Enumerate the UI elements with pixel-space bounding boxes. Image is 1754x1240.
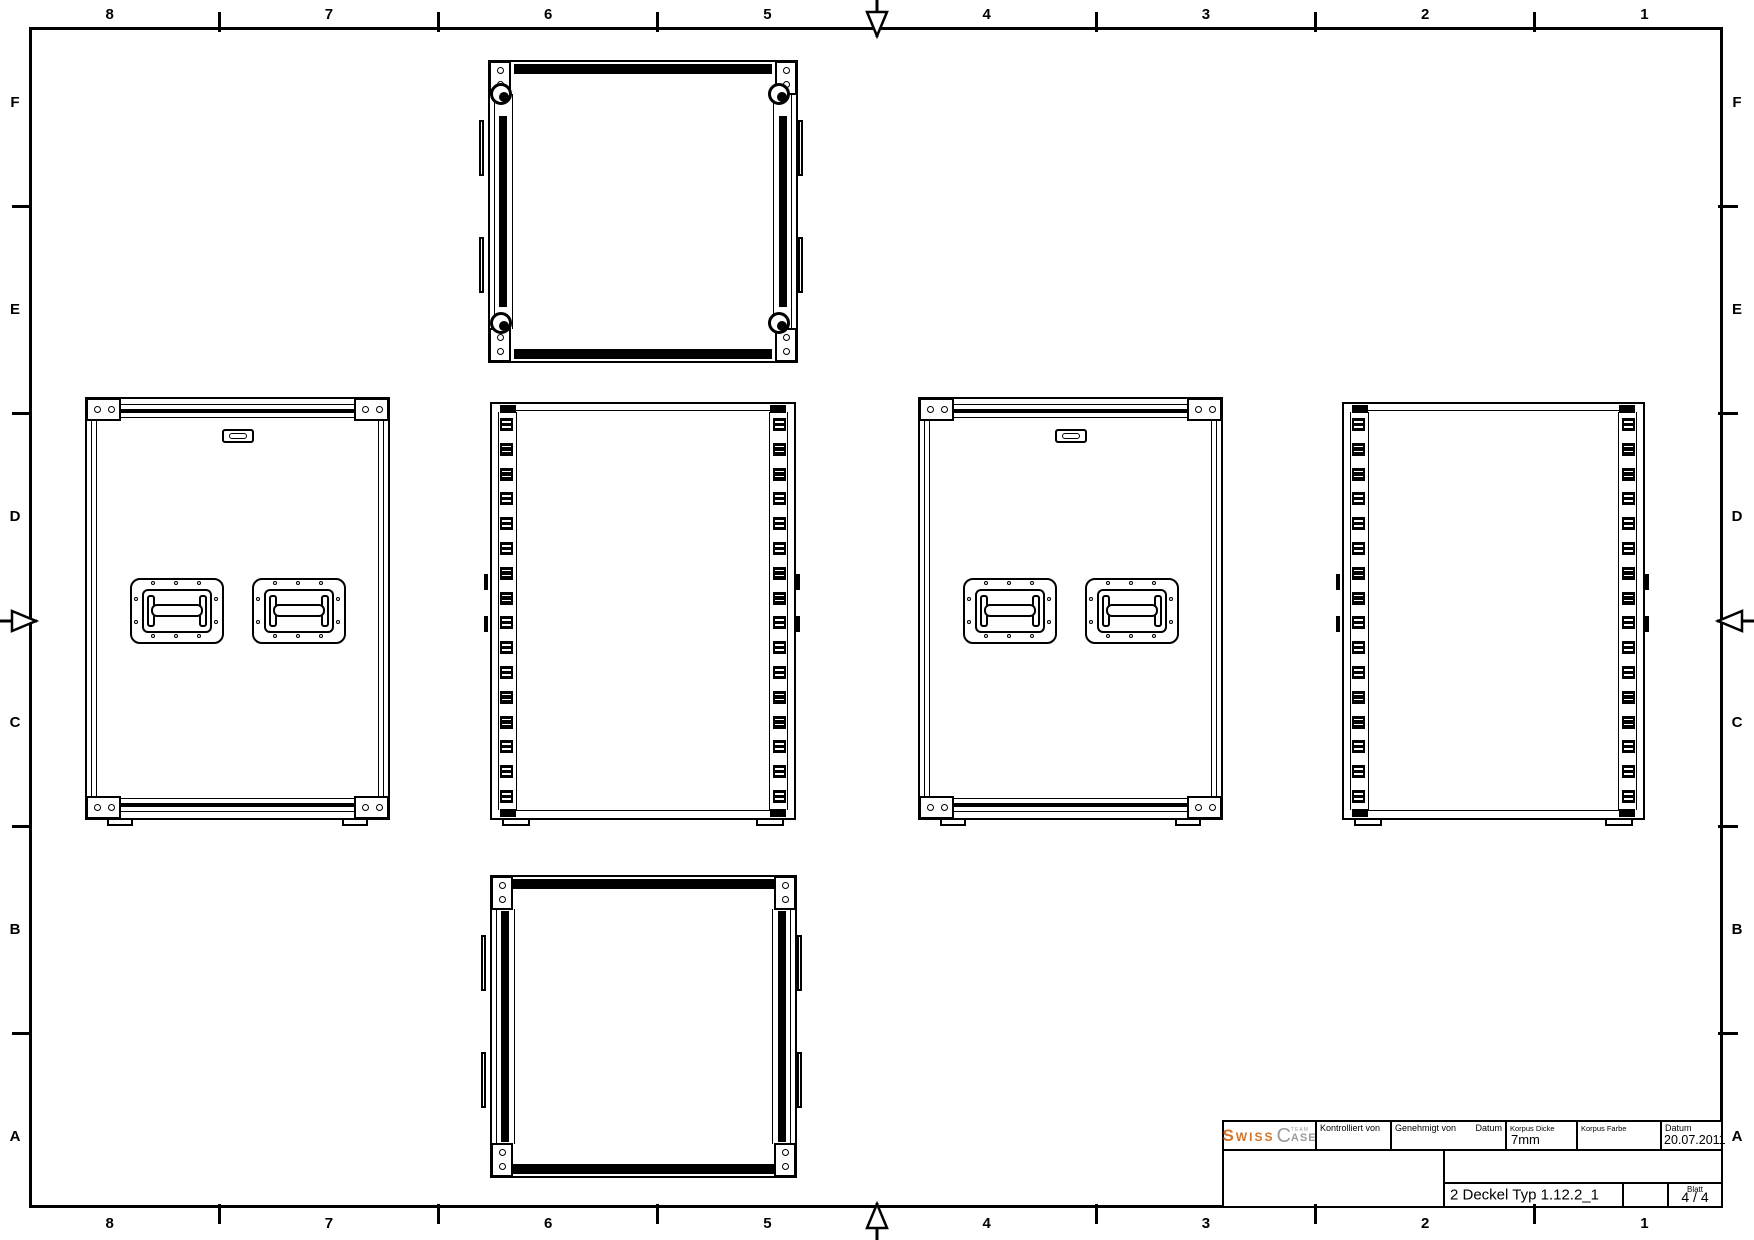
rivet-clip-icon [773, 517, 786, 530]
grid-row-label-left: B [6, 921, 24, 939]
rivet-slot [775, 748, 784, 750]
edge-line [516, 810, 770, 811]
rivet-slot [775, 446, 784, 448]
rivet-hole [376, 804, 383, 811]
rivet-clip-icon [1622, 641, 1635, 654]
rivet-hole [362, 804, 369, 811]
rivet-hole [783, 348, 790, 355]
ball-corner-center [499, 92, 509, 102]
handle-end-icon [1645, 616, 1649, 632]
rivet-slot [1624, 768, 1633, 770]
rivet-slot [502, 724, 511, 726]
hinge-icon [797, 1052, 802, 1108]
rivet-clip-icon [1352, 666, 1365, 679]
rivet-slot [1354, 768, 1363, 770]
rivet-hole [376, 406, 383, 413]
rivet-clip-icon [1622, 443, 1635, 456]
lid-profile-band-top [506, 879, 781, 889]
korpus-farbe-label: Korpus Farbe [1581, 1124, 1626, 1133]
rivet-clip-icon [500, 492, 513, 505]
rivet-hole [94, 406, 101, 413]
edge-line [516, 410, 770, 411]
handle-grip-bar [151, 604, 203, 617]
profile-line [772, 909, 773, 1144]
rivet-clip-icon [773, 765, 786, 778]
rivet-slot [775, 476, 784, 478]
rivet-slot [502, 600, 511, 602]
genehmigt-label: Genehmigt von [1395, 1123, 1456, 1133]
rivet-hole [497, 348, 504, 355]
handle-screw [134, 620, 138, 624]
hinge-icon [481, 1052, 486, 1108]
case-outline [490, 402, 796, 820]
lid-profile-band-right [779, 116, 787, 307]
rivet-slot [775, 421, 784, 423]
recessed-handle-icon [1085, 578, 1179, 644]
rail-line [516, 412, 517, 810]
handle-screw [1089, 620, 1093, 624]
rail-line [1350, 412, 1351, 810]
center-mark-top-arrow-icon [862, 0, 892, 44]
rivet-clip-icon [1622, 492, 1635, 505]
rivet-hole [941, 804, 948, 811]
rivet-slot [1354, 644, 1363, 646]
logo-swiss-text: SWISS [1222, 1126, 1274, 1146]
rivet-slot [775, 793, 784, 795]
corner-plate [774, 1143, 796, 1177]
rivet-clip-icon [1622, 691, 1635, 704]
corner-plate [919, 398, 954, 421]
grid-column-label-top: 2 [1413, 6, 1437, 24]
rivet-slot [1354, 724, 1363, 726]
handle-screw [1152, 634, 1156, 638]
rivet-slot [1354, 500, 1363, 502]
grid-tick [1314, 12, 1317, 32]
grid-tick [1718, 412, 1738, 415]
rivet-slot [1624, 793, 1633, 795]
rivet-clip-icon [1352, 765, 1365, 778]
rivet-slot [502, 426, 511, 428]
rivet-slot [502, 748, 511, 750]
rivet-slot [502, 768, 511, 770]
corner-plate [491, 1143, 513, 1177]
case-outline [488, 60, 798, 363]
handle-end-icon [796, 574, 800, 590]
corner-plate [86, 796, 121, 819]
corner-plate [354, 398, 389, 421]
drawing-title: 2 Deckel Typ 1.12.2_1 [1450, 1187, 1599, 1204]
rivet-clip-icon [1622, 666, 1635, 679]
rail-end-block [1619, 809, 1635, 817]
rivet-clip-icon [1352, 418, 1365, 431]
lid-seam-band [113, 803, 362, 807]
rivet-clip-icon [1352, 567, 1365, 580]
rivet-clip-icon [1622, 740, 1635, 753]
drawing-sheet: SWISSCTEAMASE Kontrolliert von Genehmigt… [0, 0, 1754, 1240]
handle-screw [174, 634, 178, 638]
profile-line [383, 421, 384, 796]
case-view-lid-bottom [490, 875, 797, 1178]
rivet-slot [1354, 550, 1363, 552]
hinge-icon [479, 237, 484, 293]
rivet-hole [108, 406, 115, 413]
center-mark-bottom-arrow-icon [862, 1196, 892, 1240]
rivet-clip-icon [773, 592, 786, 605]
grid-column-label-top: 8 [98, 6, 122, 24]
rivet-clip-icon [773, 542, 786, 555]
rivet-hole [497, 67, 504, 74]
rivet-slot [775, 570, 784, 572]
rivet-clip-icon [1352, 542, 1365, 555]
case-foot [342, 818, 368, 826]
rivet-clip-icon [1352, 616, 1365, 629]
hinge-icon [798, 237, 803, 293]
rivet-hole [941, 406, 948, 413]
rivet-slot [502, 545, 511, 547]
rivet-clip-icon [773, 641, 786, 654]
rivet-clip-icon [500, 740, 513, 753]
rivet-slot [1354, 575, 1363, 577]
recessed-handle-icon [130, 578, 224, 644]
grid-tick [1718, 205, 1738, 208]
ball-corner-center [777, 321, 787, 331]
case-view-side-center [490, 402, 796, 820]
handle-screw [1169, 620, 1173, 624]
rivet-slot [775, 545, 784, 547]
rivet-slot [502, 550, 511, 552]
profile-line [378, 421, 379, 796]
grid-column-label-bottom: 1 [1632, 1215, 1656, 1233]
rivet-slot [1624, 495, 1633, 497]
grid-column-label-bottom: 5 [755, 1215, 779, 1233]
rivet-slot [1624, 451, 1633, 453]
rivet-clip-icon [773, 790, 786, 803]
handle-screw [1030, 634, 1034, 638]
case-view-side-right [1342, 402, 1645, 820]
rivet-slot [502, 798, 511, 800]
rivet-slot [775, 773, 784, 775]
corner-plate [919, 796, 954, 819]
rivet-slot [502, 451, 511, 453]
rivet-slot [775, 743, 784, 745]
rail-line [1618, 412, 1619, 810]
rivet-slot [1354, 694, 1363, 696]
lid-seam-line [946, 811, 1195, 812]
corner-plate [774, 876, 796, 910]
swisscase-logo: SWISSCTEAMASE [1222, 1120, 1317, 1151]
grid-tick [1718, 825, 1738, 828]
profile-line [512, 94, 513, 329]
grid-row-label-left: F [6, 94, 24, 112]
titleblock-cell-kontrolliert: Kontrolliert von [1315, 1120, 1392, 1151]
rivet-clip-icon [1352, 740, 1365, 753]
rivet-slot [775, 768, 784, 770]
rivet-clip-icon [773, 443, 786, 456]
lid-seam-line [920, 417, 1221, 418]
rivet-clip-icon [500, 691, 513, 704]
corner-plate [1187, 796, 1222, 819]
rivet-slot [1354, 520, 1363, 522]
rivet-slot [775, 550, 784, 552]
rivet-slot [1354, 748, 1363, 750]
rivet-slot [1624, 748, 1633, 750]
rivet-slot [1354, 624, 1363, 626]
profile-line [96, 421, 97, 796]
titleblock-cell-genehmigt: Genehmigt von Datum [1390, 1120, 1507, 1151]
rivet-slot [1354, 595, 1363, 597]
profile-line [496, 909, 497, 1144]
titleblock-cell-blatt: Blatt 4 / 4 [1667, 1182, 1723, 1208]
grid-column-label-top: 5 [755, 6, 779, 24]
case-foot [107, 818, 133, 826]
rivet-slot [502, 649, 511, 651]
handle-screw [319, 581, 323, 585]
grid-column-label-top: 7 [317, 6, 341, 24]
rivet-slot [1354, 446, 1363, 448]
case-foot [940, 818, 966, 826]
rivet-slot [1354, 525, 1363, 527]
handle-screw [1047, 620, 1051, 624]
rivet-clip-icon [1622, 567, 1635, 580]
lid-seam-line [946, 404, 1195, 405]
lid-seam-band [946, 409, 1195, 413]
hinge-icon [797, 935, 802, 991]
handle-screw [256, 597, 260, 601]
rivet-hole [782, 896, 789, 903]
handle-screw [967, 620, 971, 624]
rivet-slot [1624, 724, 1633, 726]
rivet-hole [108, 804, 115, 811]
lid-profile-band-top [514, 64, 772, 74]
hinge-icon [479, 120, 484, 176]
center-mark-right-arrow-icon [1710, 606, 1754, 636]
ball-corner-center [499, 321, 509, 331]
kontrolliert-label: Kontrolliert von [1320, 1123, 1380, 1133]
grid-tick [12, 825, 32, 828]
rivet-slot [502, 525, 511, 527]
handle-screw [967, 597, 971, 601]
blatt-value: 4 / 4 [1669, 1189, 1721, 1205]
hinge-icon [798, 120, 803, 176]
handle-screw [174, 581, 178, 585]
rivet-slot [1624, 699, 1633, 701]
rivet-hole [94, 804, 101, 811]
rivet-slot [1354, 798, 1363, 800]
handle-grip-bar [1106, 604, 1158, 617]
rivet-clip-icon [1622, 765, 1635, 778]
corner-plate [1187, 398, 1222, 421]
rivet-slot [1624, 595, 1633, 597]
rivet-slot [1624, 545, 1633, 547]
datum-label: Datum [1665, 1123, 1692, 1133]
corner-plate [86, 398, 121, 421]
rivet-slot [1624, 500, 1633, 502]
rivet-slot [1354, 649, 1363, 651]
rivet-slot [1624, 471, 1633, 473]
grid-tick [1095, 12, 1098, 32]
grid-row-label-left: E [6, 301, 24, 319]
rail-end-block [500, 405, 516, 413]
rivet-slot [502, 570, 511, 572]
rivet-slot [502, 471, 511, 473]
rivet-clip-icon [773, 616, 786, 629]
edge-line [1368, 410, 1619, 411]
rail-line [769, 412, 770, 810]
grid-tick [1533, 1204, 1536, 1224]
case-foot [1354, 818, 1382, 826]
rivet-slot [1624, 426, 1633, 428]
grid-tick [437, 12, 440, 32]
grid-column-label-bottom: 8 [98, 1215, 122, 1233]
profile-line [1216, 421, 1217, 796]
handle-screw [256, 620, 260, 624]
rivet-slot [1354, 495, 1363, 497]
rivet-slot [1354, 619, 1363, 621]
rivet-slot [502, 644, 511, 646]
rivet-hole [782, 1163, 789, 1170]
rivet-hole [782, 1149, 789, 1156]
rivet-slot [775, 719, 784, 721]
rivet-clip-icon [500, 765, 513, 778]
rivet-clip-icon [500, 616, 513, 629]
handle-end-icon [1336, 574, 1340, 590]
rivet-slot [1624, 520, 1633, 522]
rail-end-block [1352, 809, 1368, 817]
rivet-slot [502, 595, 511, 597]
handle-screw [319, 634, 323, 638]
genehmigt-datum-label: Datum [1475, 1123, 1502, 1133]
rivet-clip-icon [500, 716, 513, 729]
rivet-hole [783, 334, 790, 341]
rail-end-block [770, 405, 786, 413]
rivet-clip-icon [773, 492, 786, 505]
grid-column-label-bottom: 3 [1194, 1215, 1218, 1233]
handle-screw [197, 581, 201, 585]
rivet-clip-icon [1622, 517, 1635, 530]
grid-row-label-left: A [6, 1128, 24, 1146]
handle-end-icon [1645, 574, 1649, 590]
rivet-hole [499, 1163, 506, 1170]
handle-screw [1030, 581, 1034, 585]
rivet-slot [1354, 451, 1363, 453]
rivet-slot [1354, 570, 1363, 572]
titleblock-cell-big-empty [1222, 1149, 1445, 1208]
label-plate-inner [229, 433, 247, 439]
rivet-clip-icon [500, 468, 513, 481]
profile-line [791, 94, 792, 329]
rivet-slot [775, 624, 784, 626]
lid-seam-line [87, 417, 388, 418]
rivet-slot [502, 476, 511, 478]
handle-screw [336, 620, 340, 624]
rivet-clip-icon [1622, 716, 1635, 729]
handle-end-icon [484, 616, 488, 632]
rivet-clip-icon [1352, 517, 1365, 530]
rivet-slot [502, 793, 511, 795]
grid-row-label-right: E [1728, 301, 1746, 319]
rivet-hole [499, 1149, 506, 1156]
titleblock-cell-korpus-farbe: Korpus Farbe [1576, 1120, 1662, 1151]
rivet-clip-icon [773, 418, 786, 431]
rivet-slot [1624, 624, 1633, 626]
rivet-slot [1354, 669, 1363, 671]
rivet-slot [502, 773, 511, 775]
rivet-clip-icon [1622, 468, 1635, 481]
rail-end-block [1352, 405, 1368, 413]
rivet-slot [1624, 669, 1633, 671]
handle-screw [984, 634, 988, 638]
profile-line [773, 94, 774, 329]
rivet-clip-icon [500, 517, 513, 530]
handle-screw [134, 597, 138, 601]
rivet-clip-icon [1352, 790, 1365, 803]
handle-grip-bar [273, 604, 325, 617]
rivet-hole [1209, 804, 1216, 811]
handle-screw [336, 597, 340, 601]
rivet-slot [502, 719, 511, 721]
edge-line [1368, 810, 1619, 811]
recessed-handle-icon [252, 578, 346, 644]
case-foot [502, 818, 530, 826]
rivet-slot [1624, 619, 1633, 621]
grid-row-label-right: C [1728, 714, 1746, 732]
rivet-hole [782, 882, 789, 889]
case-outline [490, 875, 797, 1178]
rivet-slot [502, 743, 511, 745]
rivet-hole [927, 804, 934, 811]
rivet-slot [775, 674, 784, 676]
handle-screw [1089, 597, 1093, 601]
rivet-slot [1624, 644, 1633, 646]
rivet-slot [1624, 649, 1633, 651]
titleblock-cell-korpus-dicke: Korpus Dicke 7mm [1505, 1120, 1578, 1151]
rivet-slot [1354, 426, 1363, 428]
rivet-clip-icon [773, 468, 786, 481]
handle-grip-bar [984, 604, 1036, 617]
rivet-slot [502, 619, 511, 621]
grid-tick [1718, 1032, 1738, 1035]
case-foot [1605, 818, 1633, 826]
rivet-slot [1354, 545, 1363, 547]
rivet-slot [1624, 575, 1633, 577]
lid-profile-band-left [499, 116, 507, 307]
rivet-clip-icon [500, 592, 513, 605]
rivet-slot [1354, 674, 1363, 676]
lid-profile-band-bottom [506, 1164, 781, 1174]
rivet-clip-icon [773, 740, 786, 753]
handle-screw [214, 620, 218, 624]
grid-tick [12, 412, 32, 415]
grid-tick [656, 1204, 659, 1224]
rivet-clip-icon [1622, 790, 1635, 803]
case-foot [1175, 818, 1201, 826]
rivet-slot [502, 669, 511, 671]
rivet-slot [1624, 550, 1633, 552]
rail-end-block [1619, 405, 1635, 413]
rivet-clip-icon [500, 567, 513, 580]
rivet-slot [1624, 674, 1633, 676]
rivet-slot [1354, 476, 1363, 478]
handle-end-icon [484, 574, 488, 590]
rivet-slot [1354, 793, 1363, 795]
rivet-slot [1354, 471, 1363, 473]
grid-column-label-top: 1 [1632, 6, 1656, 24]
rivet-hole [499, 882, 506, 889]
korpus-dicke-value: 7mm [1511, 1132, 1540, 1147]
rivet-clip-icon [500, 542, 513, 555]
handle-screw [273, 634, 277, 638]
profile-line [1211, 421, 1212, 796]
